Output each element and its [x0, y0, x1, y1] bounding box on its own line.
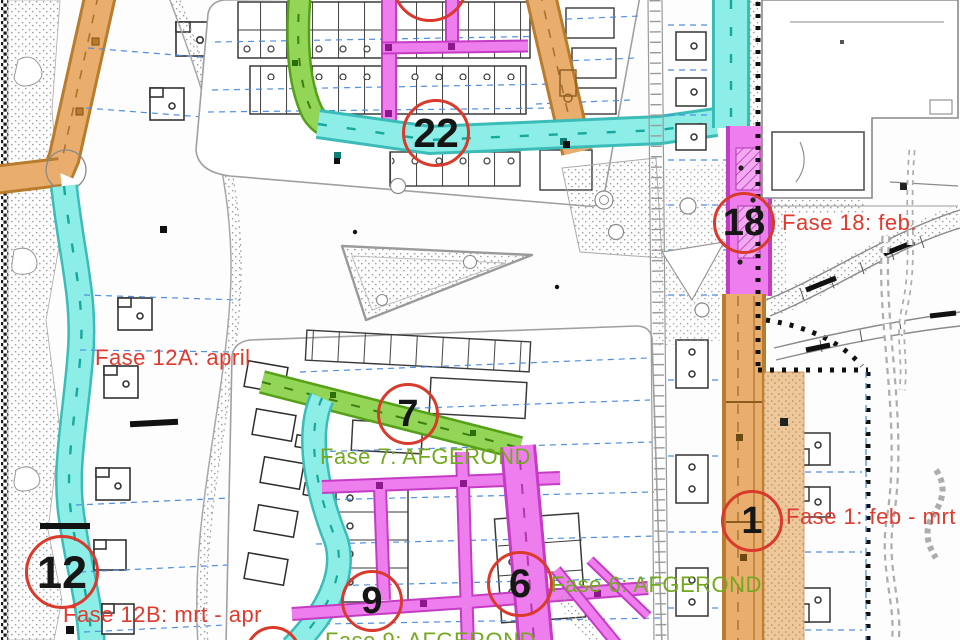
left-houses [94, 22, 212, 634]
road-cyan-right [712, 0, 758, 128]
building-topright [762, 0, 958, 214]
road-cyan-left [40, 186, 178, 640]
left-verge-texture [8, 0, 62, 640]
left-boundary-zipper [1, 0, 8, 640]
site-plan-viewport: 212218712961Fase 12A: aprilFase 18: feb.… [0, 0, 960, 640]
road-orange-1 [722, 294, 804, 640]
site-plan-canvas[interactable] [0, 0, 960, 640]
park-triangle [342, 246, 532, 320]
